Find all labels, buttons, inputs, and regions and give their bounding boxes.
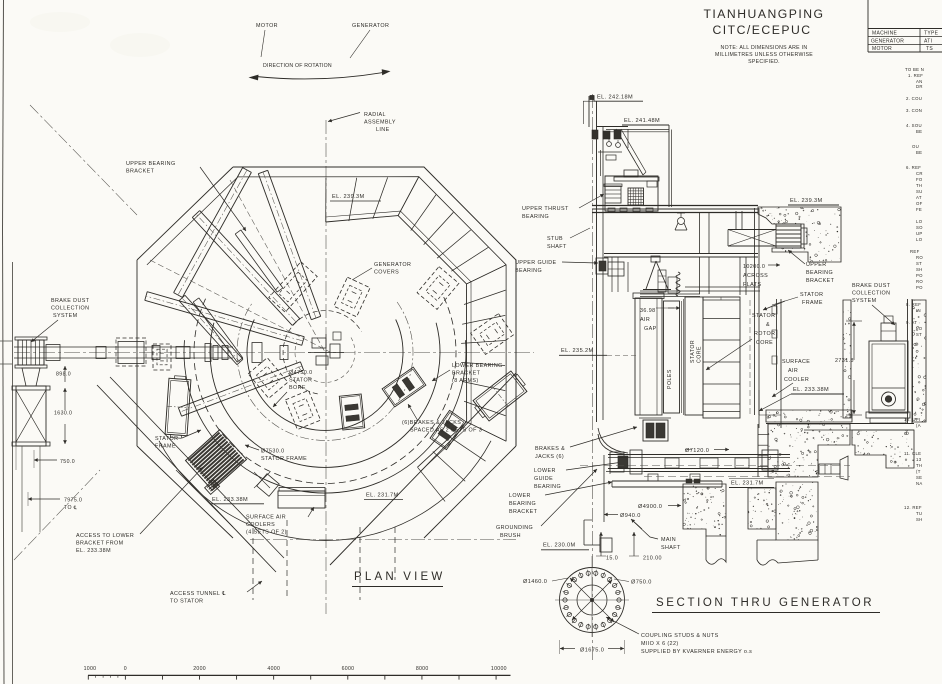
svg-text:AIR: AIR <box>788 368 798 374</box>
svg-text:15.0: 15.0 <box>606 556 618 562</box>
svg-text:EL. 230.0M: EL. 230.0M <box>543 543 576 549</box>
svg-text:ST: ST <box>916 332 922 337</box>
svg-text:UPPER THRUST: UPPER THRUST <box>522 206 569 212</box>
svg-text:LOWER: LOWER <box>534 468 556 474</box>
svg-text:STUB: STUB <box>547 236 563 242</box>
svg-text:TS: TS <box>926 46 933 52</box>
svg-text:PO: PO <box>916 285 923 290</box>
svg-text:STATOR: STATOR <box>289 378 312 384</box>
svg-text:RO: RO <box>916 279 923 284</box>
svg-text:UPPER: UPPER <box>806 262 827 268</box>
svg-text:ATI: ATI <box>924 39 932 45</box>
svg-text:TO ℄: TO ℄ <box>64 505 78 511</box>
svg-text:SURFACE AIR: SURFACE AIR <box>246 515 286 521</box>
svg-text:Ø940.0: Ø940.0 <box>620 513 641 519</box>
svg-text:AIR: AIR <box>640 317 650 323</box>
svg-text:SH: SH <box>916 517 923 522</box>
svg-text:MIIO X 6 (22): MIIO X 6 (22) <box>641 641 679 647</box>
svg-text:BE: BE <box>916 129 922 134</box>
svg-text:LO: LO <box>916 219 923 224</box>
svg-text:TO STATOR: TO STATOR <box>170 599 203 605</box>
svg-text:SH: SH <box>916 267 923 272</box>
svg-text:(A: (A <box>916 423 921 428</box>
svg-text:SU: SU <box>916 189 923 194</box>
svg-text:EL. 242.18M: EL. 242.18M <box>597 95 633 101</box>
svg-text:Ø750.0: Ø750.0 <box>631 580 652 586</box>
svg-text:BEARING: BEARING <box>522 214 549 220</box>
svg-text:6. REF: 6. REF <box>906 165 921 170</box>
svg-text:SPECIFIED.: SPECIFIED. <box>748 59 780 65</box>
svg-text:STATOR: STATOR <box>690 340 696 363</box>
svg-text:SPACED AS 2 SETS OF 3: SPACED AS 2 SETS OF 3 <box>410 428 482 434</box>
svg-text:BRAKES &: BRAKES & <box>535 446 565 452</box>
svg-text:TH: TH <box>916 183 922 188</box>
svg-text:DIRECTION OF ROTATION: DIRECTION OF ROTATION <box>263 63 332 69</box>
svg-text:LOWER: LOWER <box>509 493 531 499</box>
svg-text:0: 0 <box>124 666 127 672</box>
svg-text:2000: 2000 <box>193 666 206 672</box>
svg-text:750.0: 750.0 <box>60 459 75 465</box>
svg-text:898.0: 898.0 <box>56 372 71 378</box>
svg-text:EL. 231.7M: EL. 231.7M <box>731 481 764 487</box>
svg-text:GAP: GAP <box>644 326 657 332</box>
svg-text:BRUSH: BRUSH <box>500 533 521 539</box>
svg-text:BORE: BORE <box>289 385 306 391</box>
svg-text:1630.0: 1630.0 <box>54 411 72 417</box>
svg-text:210.00: 210.00 <box>643 556 662 562</box>
svg-text:11. CLE: 11. CLE <box>904 451 921 456</box>
svg-text:FRAME: FRAME <box>155 444 176 450</box>
svg-text:BRACKET: BRACKET <box>806 278 835 284</box>
svg-text:1. REF: 1. REF <box>908 73 923 78</box>
svg-text:SUPPLIED BY KVAERNER ENERGY o.: SUPPLIED BY KVAERNER ENERGY o.s <box>641 649 752 655</box>
svg-text:COUPLING STUDS & NUTS: COUPLING STUDS & NUTS <box>641 633 719 639</box>
svg-text:PO: PO <box>916 273 923 278</box>
svg-text:GENERATOR: GENERATOR <box>374 262 411 268</box>
svg-text:Ø4900.0: Ø4900.0 <box>638 504 662 510</box>
svg-text:UP: UP <box>916 231 923 236</box>
svg-text:BE: BE <box>916 150 922 155</box>
svg-text:BRACKET: BRACKET <box>452 371 481 377</box>
svg-text:EL. 235.2M: EL. 235.2M <box>561 348 594 354</box>
svg-text:CORE: CORE <box>697 346 703 363</box>
svg-text:GENERATOR: GENERATOR <box>871 39 904 45</box>
svg-text:MACHINE: MACHINE <box>872 31 898 37</box>
svg-text:ACROSS: ACROSS <box>743 273 768 279</box>
svg-text:Ø1675.0: Ø1675.0 <box>580 648 604 654</box>
svg-text:10000: 10000 <box>491 666 507 672</box>
svg-text:3. CON: 3. CON <box>906 108 922 113</box>
svg-text:ACCESS TUNNEL ℄: ACCESS TUNNEL ℄ <box>170 591 226 597</box>
svg-text:COLLECTION: COLLECTION <box>852 291 890 297</box>
svg-text:4000: 4000 <box>267 666 280 672</box>
svg-text:Ø7530.0: Ø7530.0 <box>261 449 284 455</box>
svg-text:SECTION THRU GENERATOR: SECTION THRU GENERATOR <box>656 597 874 609</box>
svg-text:RADIAL: RADIAL <box>364 112 386 118</box>
svg-text:SYSTEM: SYSTEM <box>852 298 877 304</box>
svg-text:AT: AT <box>916 195 922 200</box>
svg-text:MOTOR: MOTOR <box>256 23 278 29</box>
svg-text:CORE: CORE <box>756 340 773 346</box>
svg-text:SHAFT: SHAFT <box>661 545 681 551</box>
svg-text:EL. 239.3M: EL. 239.3M <box>790 198 823 204</box>
svg-text:BEARING: BEARING <box>534 484 561 490</box>
svg-text:LOWER BEARING: LOWER BEARING <box>452 363 503 369</box>
svg-text:COVERS: COVERS <box>374 270 399 276</box>
svg-text:UPPER GUIDE: UPPER GUIDE <box>515 260 557 266</box>
svg-text:LINE: LINE <box>376 127 390 133</box>
svg-text:BEARING: BEARING <box>515 268 542 274</box>
svg-text:SHAFT: SHAFT <box>547 244 567 250</box>
svg-text:Ø1460.0: Ø1460.0 <box>523 579 547 585</box>
svg-text:8000: 8000 <box>416 666 429 672</box>
svg-text:TH: TH <box>916 463 922 468</box>
svg-text:12. REF: 12. REF <box>904 505 922 510</box>
svg-text:BRAKE DUST: BRAKE DUST <box>51 298 90 304</box>
svg-text:(6)BRAKES & JACKS: (6)BRAKES & JACKS <box>402 420 461 426</box>
svg-text:TU: TU <box>916 511 922 516</box>
svg-text:COOLERS: COOLERS <box>246 522 275 528</box>
svg-text:BRACKET: BRACKET <box>509 509 538 515</box>
svg-text:OF: OF <box>916 201 923 206</box>
svg-text:LO: LO <box>916 237 923 242</box>
svg-text:REF: REF <box>910 249 920 254</box>
svg-text:MOTOR: MOTOR <box>872 46 892 52</box>
svg-text:DR: DR <box>916 84 923 89</box>
svg-text:TO BE N: TO BE N <box>905 67 924 72</box>
svg-text:CITC/ECEPUC: CITC/ECEPUC <box>712 23 811 37</box>
svg-text:POLES: POLES <box>667 369 673 389</box>
svg-text:SE: SE <box>916 475 922 480</box>
svg-text:MAIN: MAIN <box>661 537 676 543</box>
svg-text:TYPE: TYPE <box>924 31 939 37</box>
svg-text:STATOR: STATOR <box>155 436 178 442</box>
svg-text:CR: CR <box>916 171 923 176</box>
svg-text:TIANHUANGPING: TIANHUANGPING <box>703 7 824 21</box>
svg-text:FRAME: FRAME <box>802 300 823 306</box>
svg-text:EL. 233.38M: EL. 233.38M <box>76 548 111 554</box>
svg-text:GUIDE: GUIDE <box>534 476 553 482</box>
svg-text:Ø4750.0: Ø4750.0 <box>289 370 312 376</box>
svg-text:Ø7120.0: Ø7120.0 <box>685 448 709 454</box>
svg-text:(8 ARMS): (8 ARMS) <box>452 378 479 384</box>
svg-text:BEARING: BEARING <box>509 501 536 507</box>
svg-text:NOTE: ALL DIMENSIONS ARE IN: NOTE: ALL DIMENSIONS ARE IN <box>721 45 808 51</box>
svg-text:SO: SO <box>916 225 923 230</box>
svg-text:ASSEMBLY: ASSEMBLY <box>364 120 396 126</box>
svg-text:BRAKE DUST: BRAKE DUST <box>852 283 891 289</box>
svg-text:EL. 239.3M: EL. 239.3M <box>332 194 365 200</box>
svg-text:(4 SETS OF 2): (4 SETS OF 2) <box>246 530 287 536</box>
svg-text:GROUNDING: GROUNDING <box>496 525 533 531</box>
svg-text:ST: ST <box>916 261 922 266</box>
svg-text:BRACKET FROM: BRACKET FROM <box>76 541 124 547</box>
svg-text:SYSTEM: SYSTEM <box>53 313 78 319</box>
svg-text:(T: (T <box>916 469 921 474</box>
svg-text:NA: NA <box>916 481 923 486</box>
svg-text:13: 13 <box>916 457 922 462</box>
svg-text:RO: RO <box>916 255 923 260</box>
svg-text:6000: 6000 <box>342 666 355 672</box>
svg-text:FE: FE <box>916 207 922 212</box>
svg-text:EL. 233.38M: EL. 233.38M <box>212 497 248 503</box>
svg-text:FO: FO <box>916 177 923 182</box>
svg-text:EL. 231.7M: EL. 231.7M <box>366 493 399 499</box>
svg-text:COLLECTION: COLLECTION <box>51 306 89 312</box>
svg-text:SURFACE: SURFACE <box>782 359 810 365</box>
svg-text:STATOR FRAME: STATOR FRAME <box>261 456 307 462</box>
svg-text:ACCESS TO LOWER: ACCESS TO LOWER <box>76 533 134 539</box>
svg-text:BRACKET: BRACKET <box>126 169 155 175</box>
svg-text:2. COU: 2. COU <box>906 96 922 101</box>
svg-text:EL. 241.48M: EL. 241.48M <box>624 118 660 124</box>
svg-text:UPPER BEARING: UPPER BEARING <box>126 161 176 167</box>
svg-text:MILLIMETRES UNLESS OTHERWISE: MILLIMETRES UNLESS OTHERWISE <box>715 52 813 58</box>
svg-text:STATOR: STATOR <box>800 292 823 298</box>
svg-text:BEARING: BEARING <box>806 270 833 276</box>
svg-text:OU: OU <box>912 144 919 149</box>
svg-text:GENERATOR: GENERATOR <box>352 23 389 29</box>
svg-text:JACKS (6): JACKS (6) <box>535 454 564 460</box>
svg-text:36.98: 36.98 <box>640 308 656 314</box>
svg-text:4. SOU: 4. SOU <box>906 123 922 128</box>
svg-text:1000: 1000 <box>84 666 97 672</box>
svg-text:PLAN VIEW: PLAN VIEW <box>354 571 445 583</box>
svg-text:&: & <box>766 322 770 328</box>
svg-text:COOLER: COOLER <box>784 377 809 383</box>
svg-text:EL. 233.38M: EL. 233.38M <box>793 387 829 393</box>
